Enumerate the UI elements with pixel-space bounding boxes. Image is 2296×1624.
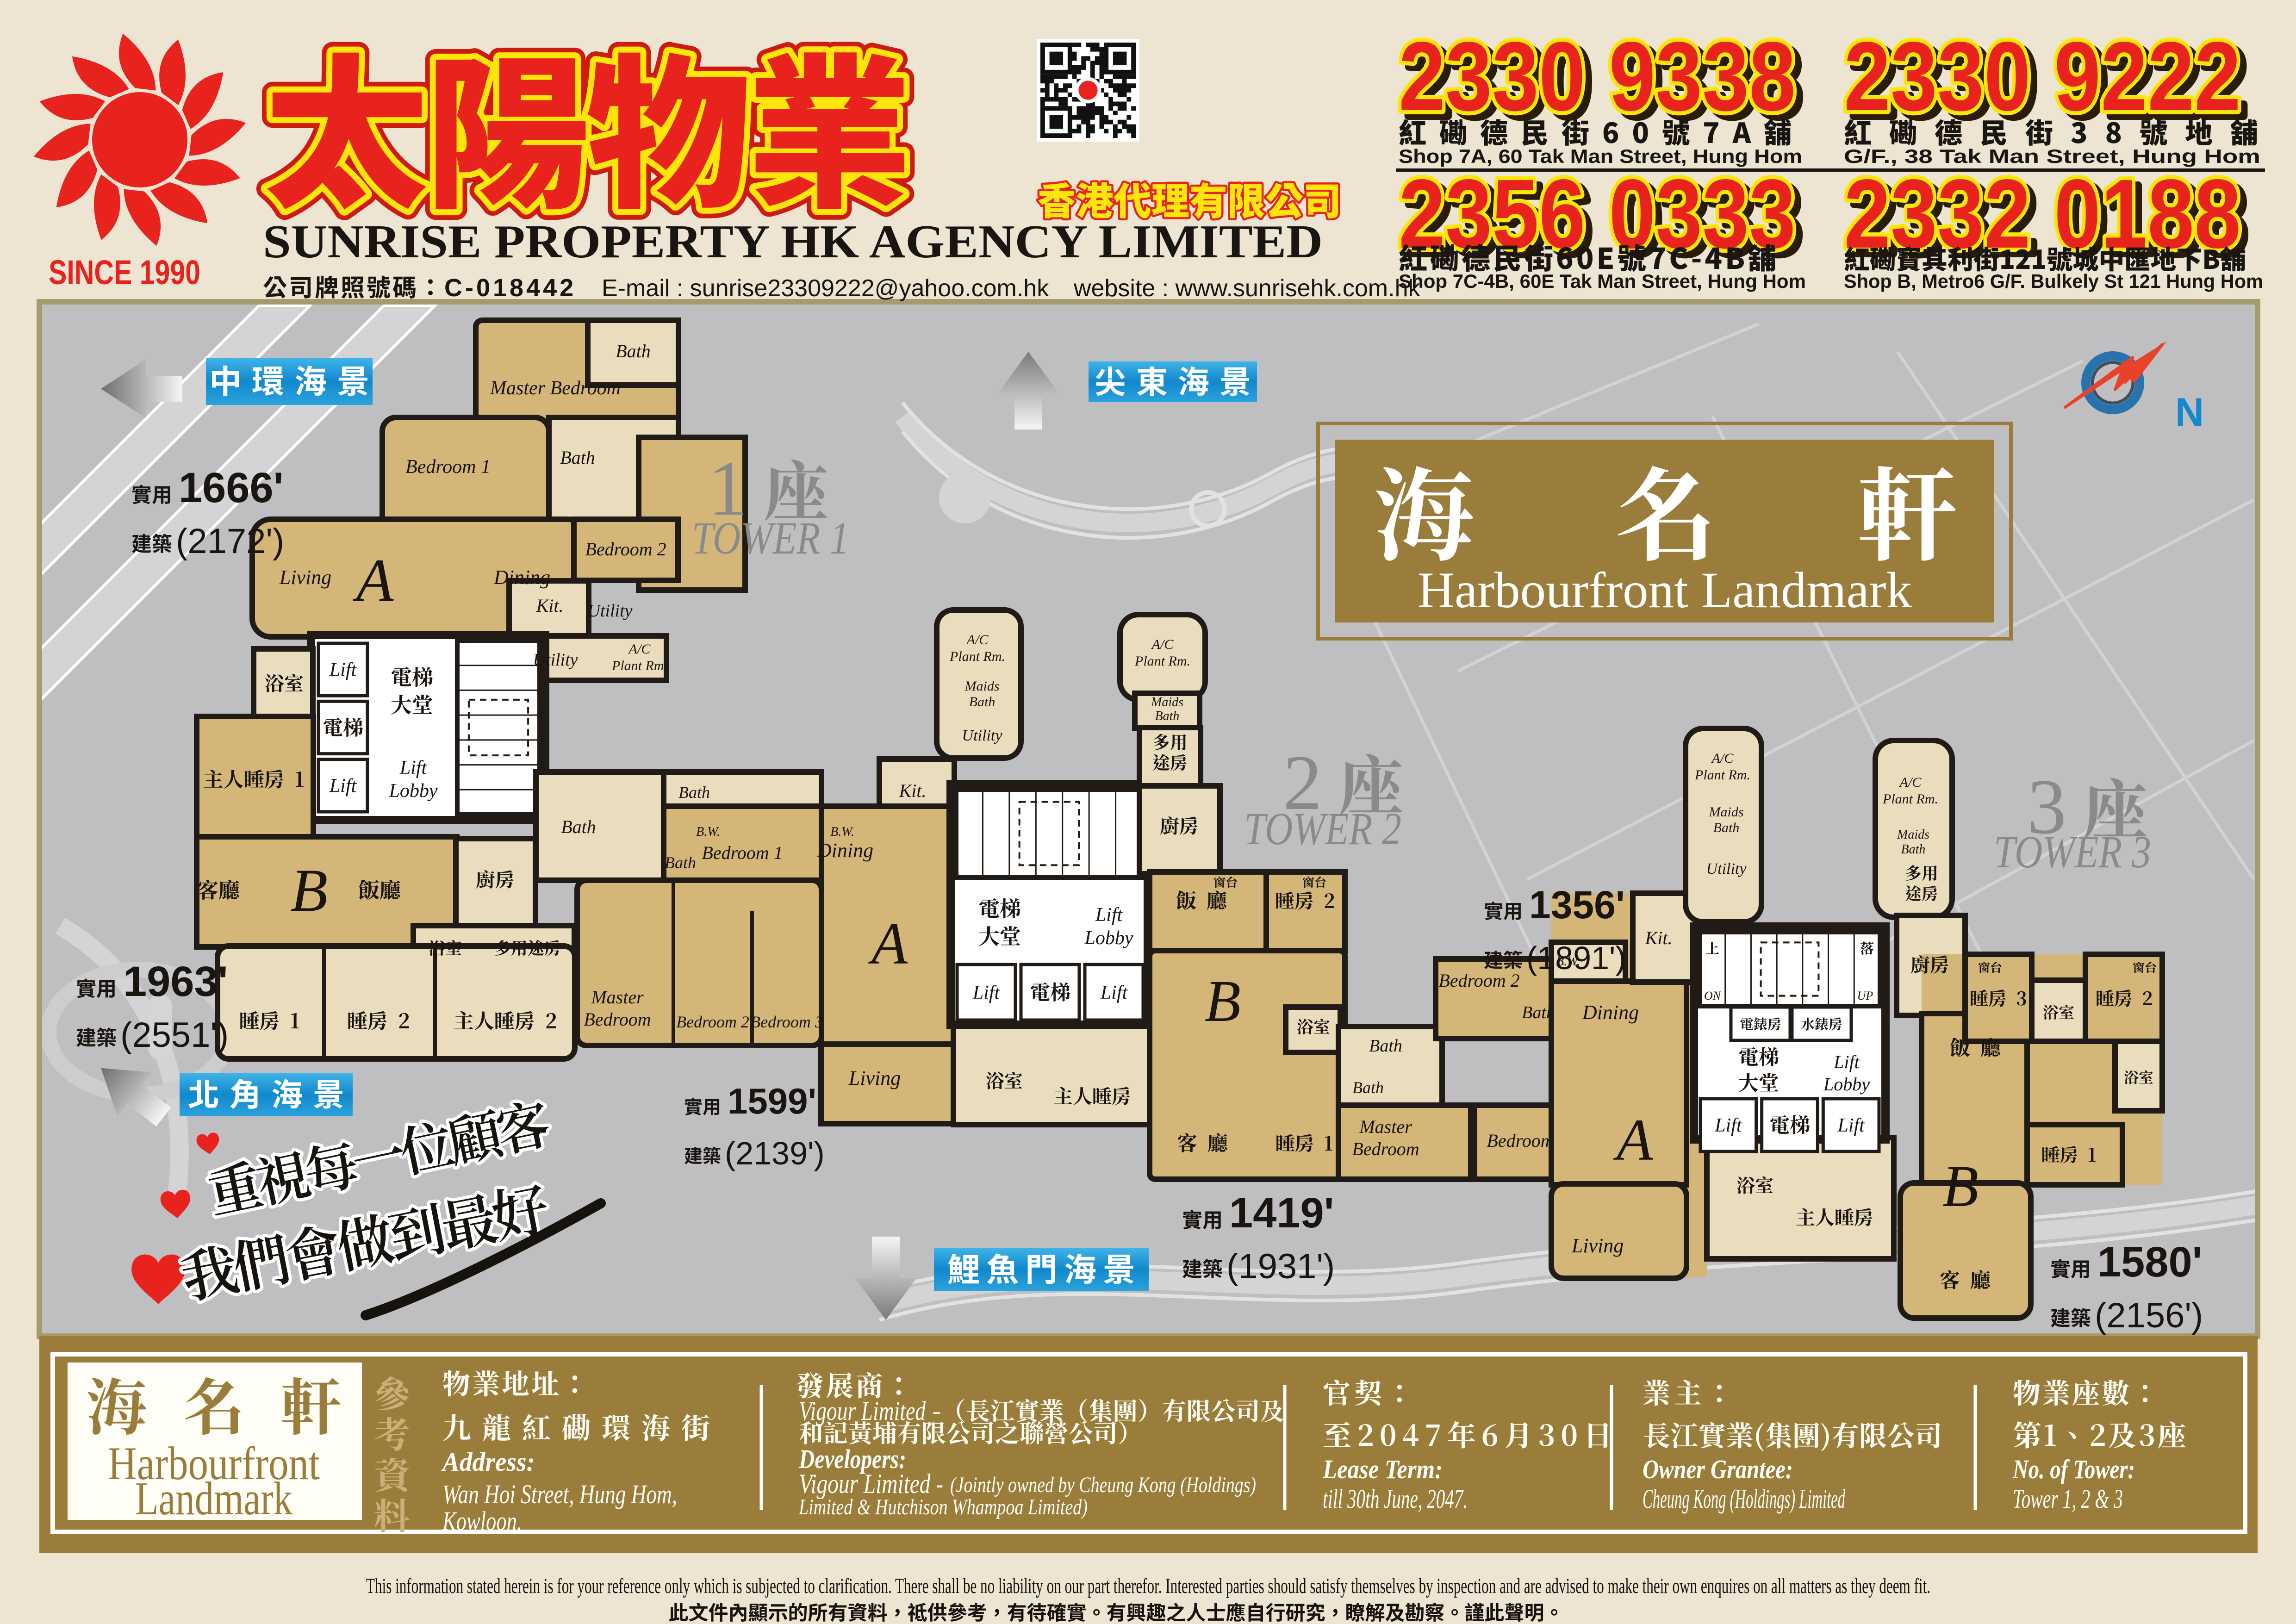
svg-text:N: N [2175, 390, 2204, 435]
svg-text:B: B [1205, 968, 1241, 1034]
svg-text:Living: Living [1571, 1234, 1624, 1257]
svg-text:UP: UP [1857, 989, 1873, 1002]
svg-text:(2551'): (2551') [120, 1015, 229, 1055]
svg-text:A: A [353, 546, 394, 614]
svg-text:Utility: Utility [962, 727, 1003, 744]
svg-text:Kit.: Kit. [1645, 927, 1673, 948]
svg-text:Bath: Bath [1155, 709, 1180, 723]
svg-text:2356 0333: 2356 0333 [1399, 159, 1796, 268]
svg-text:Wan Hoi Street, Hung Hom,: Wan Hoi Street, Hung Hom, [442, 1479, 677, 1509]
svg-text:Address:: Address: [441, 1447, 535, 1477]
svg-text:Lift: Lift [1100, 982, 1128, 1003]
svg-text:Shop 7A, 60 Tak Man Street, Hu: Shop 7A, 60 Tak Man Street, Hung Hom [1399, 145, 1802, 167]
svg-text:Bath: Bath [1352, 1078, 1384, 1097]
svg-text:Lobby: Lobby [1084, 927, 1133, 949]
svg-text:Bath: Bath [665, 853, 696, 872]
svg-text:TOWER 1: TOWER 1 [692, 512, 849, 564]
svg-text:1580': 1580' [2097, 1238, 2203, 1286]
svg-text:Lift: Lift [972, 982, 1001, 1003]
svg-text:1419': 1419' [1229, 1189, 1334, 1237]
svg-text:Utility: Utility [1706, 860, 1747, 877]
svg-text:Bedroom: Bedroom [1352, 1139, 1419, 1159]
svg-text:Lease Term:: Lease Term: [1322, 1454, 1443, 1484]
svg-text:Maids: Maids [1709, 804, 1744, 820]
svg-text:Lift: Lift [399, 757, 428, 778]
svg-text:Kit.: Kit. [536, 595, 564, 616]
svg-text:Plant Rm.: Plant Rm. [1134, 653, 1190, 669]
svg-text:1666': 1666' [179, 464, 284, 511]
svg-text:A/C: A/C [1711, 751, 1734, 766]
svg-text:Maids: Maids [964, 678, 1000, 694]
svg-text:B: B [291, 856, 328, 924]
svg-text:Plant Rm.: Plant Rm. [949, 649, 1005, 664]
svg-text:TOWER 2: TOWER 2 [1244, 803, 1401, 854]
svg-text:B: B [1942, 1153, 1979, 1219]
svg-text:Bath: Bath [616, 341, 651, 361]
svg-text:B.W.: B.W. [830, 825, 854, 839]
svg-text:SUNRISE PROPERTY HK AGENCY LIM: SUNRISE PROPERTY HK AGENCY LIMITED [263, 216, 1323, 268]
svg-text:(1931'): (1931') [1226, 1247, 1335, 1286]
svg-text:Lift: Lift [1837, 1115, 1865, 1136]
svg-text:Plant Rm.: Plant Rm. [1694, 767, 1750, 783]
svg-text:A: A [1613, 1107, 1653, 1173]
svg-text:Master: Master [1359, 1116, 1412, 1137]
svg-text:A/C: A/C [1151, 637, 1174, 652]
svg-text:(2156'): (2156') [2095, 1296, 2203, 1335]
svg-text:A: A [868, 911, 908, 977]
svg-text:Lobby: Lobby [389, 780, 438, 802]
svg-text:(2172'): (2172') [176, 522, 284, 561]
svg-text:Bath: Bath [1713, 820, 1740, 835]
svg-text:Bath: Bath [561, 816, 596, 837]
svg-text:ON: ON [1704, 989, 1722, 1002]
svg-text:Cheung Kong (Holdings) Limited: Cheung Kong (Holdings) Limited [1643, 1484, 1846, 1514]
svg-text:Bath: Bath [1369, 1036, 1402, 1056]
svg-text:C-018442: C-018442 [444, 274, 576, 302]
svg-text:(1891'): (1891') [1526, 940, 1626, 976]
svg-text:1599': 1599' [728, 1081, 816, 1121]
svg-text:Bedroom 3: Bedroom 3 [750, 1013, 823, 1031]
svg-text:Maids: Maids [1151, 695, 1183, 709]
svg-text:Plant Rm.: Plant Rm. [611, 658, 667, 673]
svg-text:Bedroom 2: Bedroom 2 [585, 539, 666, 560]
svg-text:Plant Rm.: Plant Rm. [1882, 791, 1938, 807]
svg-text:E-mail : sunrise23309222@yahoo: E-mail : sunrise23309222@yahoo.com.hk [602, 275, 1049, 302]
svg-text:Maids: Maids [1897, 828, 1929, 842]
svg-text:Lift: Lift [329, 775, 357, 796]
svg-text:Living: Living [848, 1067, 901, 1089]
svg-text:Shop 7C-4B, 60E Tak Man Street: Shop 7C-4B, 60E Tak Man Street, Hung Hom [1399, 270, 1806, 292]
svg-text:No. of Tower:: No. of Tower: [2012, 1454, 2135, 1484]
svg-text:Master: Master [591, 987, 644, 1008]
svg-text:B.W.: B.W. [696, 825, 720, 839]
svg-text:Bath: Bath [678, 783, 710, 802]
svg-text:Dining: Dining [816, 839, 873, 862]
svg-text:(2139'): (2139') [725, 1135, 825, 1171]
svg-text:Lift: Lift [1714, 1115, 1742, 1136]
svg-text:website : www.sunrisehk.com.hk: website : www.sunrisehk.com.hk [1073, 275, 1420, 302]
svg-text:Bedroom 1: Bedroom 1 [702, 842, 783, 863]
svg-text:Lobby: Lobby [1823, 1074, 1870, 1095]
svg-text:Harbourfront Landmark: Harbourfront Landmark [1418, 562, 1912, 618]
svg-text:Limited & Hutchison Whampoa Li: Limited & Hutchison Whampoa Limited) [798, 1495, 1088, 1519]
svg-text:Bedroom 1: Bedroom 1 [405, 456, 491, 478]
svg-text:A/C: A/C [1899, 775, 1922, 790]
svg-text:TOWER 3: TOWER 3 [1994, 826, 2151, 877]
svg-text:Bath: Bath [969, 694, 996, 709]
svg-text:1963': 1963' [123, 958, 228, 1005]
svg-text:Bedroom 2: Bedroom 2 [1438, 970, 1519, 991]
svg-text:Master Bedroom: Master Bedroom [490, 378, 621, 399]
svg-text:Owner Grantee:: Owner Grantee: [1643, 1454, 1793, 1484]
svg-text:Bedroom: Bedroom [584, 1009, 651, 1030]
svg-text:Lift: Lift [1095, 904, 1123, 926]
svg-text:Living: Living [279, 566, 331, 589]
svg-text:A/C: A/C [628, 641, 651, 657]
svg-text:Tower 1, 2 & 3: Tower 1, 2 & 3 [2013, 1484, 2123, 1514]
svg-text:Lift: Lift [1833, 1052, 1860, 1072]
svg-text:Kit.: Kit. [899, 780, 927, 801]
svg-text:Lift: Lift [329, 660, 357, 681]
svg-text:Dining: Dining [1582, 1001, 1639, 1024]
svg-text:Shop B, Metro6 G/F. Bulkely St: Shop B, Metro6 G/F. Bulkely St 121 Hung … [1844, 270, 2263, 292]
svg-text:Utility: Utility [587, 601, 632, 621]
svg-text:Landmark: Landmark [135, 1473, 292, 1525]
svg-text:Dining: Dining [493, 566, 550, 589]
svg-text:2330 9222: 2330 9222 [1844, 21, 2241, 131]
svg-text:Utility: Utility [533, 650, 578, 670]
svg-text:Bedroom 2: Bedroom 2 [676, 1013, 749, 1031]
svg-text:G/F., 38 Tak Man Street, Hung: G/F., 38 Tak Man Street, Hung Hom [1844, 145, 2260, 167]
svg-text:A/C: A/C [966, 632, 989, 647]
svg-text:1356': 1356' [1529, 883, 1625, 927]
svg-text:SINCE 1990: SINCE 1990 [49, 253, 200, 292]
svg-text:2330 9338: 2330 9338 [1399, 21, 1796, 131]
svg-text:Kowloon.: Kowloon. [442, 1506, 522, 1536]
svg-text:(Jointly owned by Cheung Kong: (Jointly owned by Cheung Kong (Holdings) [950, 1473, 1256, 1497]
svg-text:Bath: Bath [560, 447, 595, 468]
svg-text:Bath: Bath [1901, 842, 1926, 857]
svg-text:This information stated herein: This information stated herein is for yo… [366, 1574, 1930, 1598]
svg-text:till 30th June, 2047.: till 30th June, 2047. [1323, 1484, 1468, 1514]
